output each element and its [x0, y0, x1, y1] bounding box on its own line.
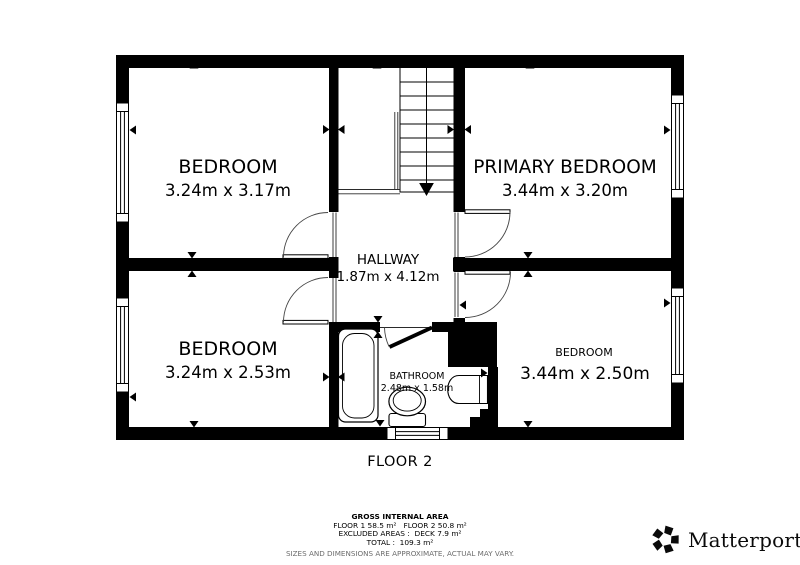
window-left-bottom	[117, 298, 129, 392]
room-dims-bedroom-tl: 3.24m x 3.17m	[165, 181, 291, 200]
matterport-mark-icon	[649, 523, 682, 556]
window-right-top	[672, 95, 684, 198]
floor-plan-drawing: BEDROOM 3.24m x 3.17m PRIMARY BEDROOM 3.…	[0, 0, 800, 565]
stair-railing	[339, 112, 401, 194]
room-dims-bedroom-br: 3.44m x 2.50m	[520, 364, 650, 384]
room-name-hallway: HALLWAY	[357, 252, 420, 268]
matterport-wordmark: Matterport	[688, 528, 800, 552]
bathroom-door	[380, 328, 432, 348]
window-right-bottom	[672, 288, 684, 383]
room-name-bathroom: BATHROOM	[390, 371, 445, 382]
room-dims-hallway: 1.87m x 4.12m	[337, 269, 440, 285]
sink-icon	[448, 376, 488, 404]
room-dims-bathroom: 2.48m x 1.58m	[381, 383, 453, 394]
window-bathroom	[387, 428, 448, 440]
stairs-down-arrow	[420, 184, 433, 196]
room-name-bedroom-tl: BEDROOM	[178, 156, 277, 178]
room-name-primary: PRIMARY BEDROOM	[473, 157, 657, 178]
room-name-bedroom-bl: BEDROOM	[178, 338, 277, 360]
room-dims-primary: 3.44m x 3.20m	[502, 181, 628, 200]
floorplan-page: BEDROOM 3.24m x 3.17m PRIMARY BEDROOM 3.…	[0, 0, 800, 565]
void-block	[448, 322, 497, 367]
matterport-logo: Matterport®	[649, 523, 800, 556]
staircase	[339, 68, 454, 195]
room-name-bedroom-br: BEDROOM	[555, 346, 612, 359]
window-left-top	[117, 103, 129, 222]
floor-label: FLOOR 2	[0, 454, 800, 470]
room-dims-bedroom-bl: 3.24m x 2.53m	[165, 363, 291, 382]
